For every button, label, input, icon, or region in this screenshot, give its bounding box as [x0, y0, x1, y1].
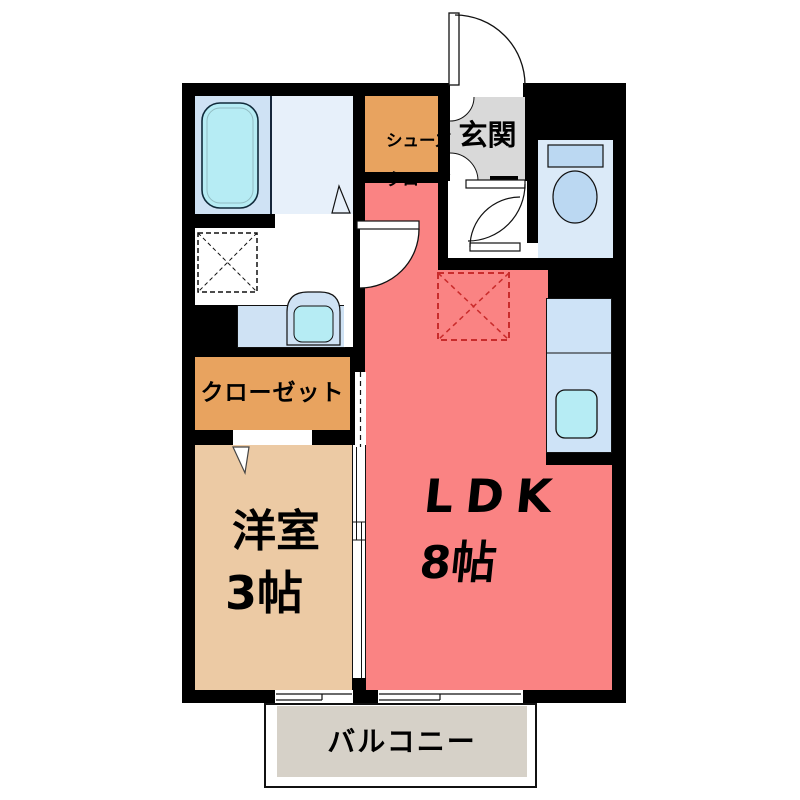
closet-label: クローゼット — [195, 380, 350, 406]
bathroom-dry-area — [272, 96, 353, 214]
ldk-name: LDK — [402, 470, 586, 523]
front-door-swing-arc — [455, 15, 525, 85]
western-room-name: 洋室 — [197, 507, 355, 558]
bathroom-door-opening — [275, 214, 353, 228]
shoe-closet-label: シューズ クローク — [363, 112, 440, 209]
washroom — [195, 228, 353, 305]
entrance-label: 玄関 — [450, 119, 525, 152]
toilet-door-opening — [527, 243, 538, 258]
yoshitsu-door-strip — [355, 372, 366, 447]
ldk-window-opening — [378, 690, 523, 703]
floor-plan: シューズ クローク 玄関 クローゼット 洋室 3帖 LDK 8帖 バルコニー — [0, 0, 800, 800]
vanity-counter — [237, 305, 345, 348]
bathroom-wet-area — [195, 96, 272, 214]
toilet-room — [538, 140, 613, 258]
western-room-size: 3帖 — [185, 567, 343, 620]
ldk-room-mid — [366, 448, 546, 465]
western-room-window-opening — [275, 690, 353, 703]
shoe-closet-label-line2: クローク — [386, 170, 452, 189]
sliding-partition — [352, 445, 366, 678]
shoe-closet-label-line1: シューズ — [386, 131, 451, 150]
hallway-vestibule — [448, 181, 527, 258]
front-door-leaf — [449, 13, 459, 85]
kitchen-counter — [546, 298, 612, 453]
ldk-size: 8帖 — [407, 537, 508, 589]
vanity-side-gap — [344, 305, 353, 347]
entrance-door-opening — [450, 83, 523, 97]
ldk-room-upper — [365, 270, 548, 448]
balcony-label: バルコニー — [277, 726, 527, 758]
